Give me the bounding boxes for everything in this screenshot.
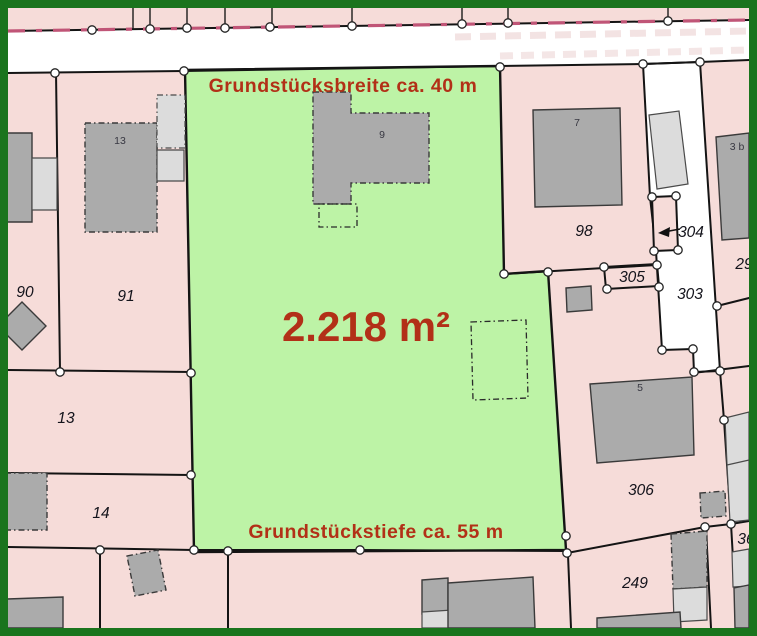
- survey-point: [639, 60, 647, 68]
- parcel-label-303: 303: [677, 286, 703, 303]
- survey-point: [690, 368, 698, 376]
- building-bottom-center-annex: [422, 578, 448, 614]
- survey-point: [720, 416, 728, 424]
- width-annotation: Grundstücksbreite ca. 40 m: [209, 75, 478, 97]
- survey-point: [180, 67, 188, 75]
- building-on-249: [671, 531, 707, 589]
- survey-point: [544, 268, 552, 276]
- building-label-13: 13: [114, 135, 126, 147]
- building-right-edge-2: [727, 460, 749, 522]
- survey-point: [187, 369, 195, 377]
- survey-point: [648, 193, 656, 201]
- survey-point: [221, 24, 229, 32]
- survey-point: [658, 346, 666, 354]
- parcel-label-14: 14: [92, 505, 110, 522]
- survey-point: [496, 63, 504, 71]
- survey-point: [224, 547, 232, 555]
- building-13-annex-upper: [157, 95, 185, 148]
- survey-point: [713, 302, 721, 310]
- survey-point: [701, 523, 709, 531]
- building-on-36-annex: [732, 549, 749, 587]
- building-label-3b: 3 b: [730, 141, 745, 153]
- survey-point: [51, 69, 59, 77]
- survey-point: [504, 19, 512, 27]
- parcel-label-306: 306: [628, 482, 654, 499]
- building-bottom-center: [448, 577, 535, 628]
- building-label-9: 9: [379, 129, 385, 141]
- building-label-5: 5: [637, 382, 643, 394]
- building-label-7: 7: [574, 117, 580, 129]
- survey-point: [650, 247, 658, 255]
- survey-point: [562, 532, 570, 540]
- small-dashed-building-306: [700, 491, 726, 518]
- building-on-36: [734, 585, 749, 628]
- survey-point: [563, 549, 571, 557]
- parcel-label-91: 91: [117, 288, 134, 305]
- survey-point: [56, 368, 64, 376]
- survey-point: [96, 546, 104, 554]
- survey-point: [603, 285, 611, 293]
- survey-point: [266, 23, 274, 31]
- survey-point: [653, 261, 661, 269]
- survey-point: [183, 24, 191, 32]
- parcel-label-305: 305: [619, 269, 645, 286]
- small-building-306: [566, 286, 592, 312]
- survey-point: [727, 520, 735, 528]
- survey-point: [356, 546, 364, 554]
- survey-point: [88, 26, 96, 34]
- building-on-14: [5, 473, 47, 530]
- depth-annotation: Grundstückstiefe ca. 55 m: [248, 521, 503, 543]
- parcel-label-98: 98: [575, 223, 593, 240]
- parcel-304[interactable]: [652, 196, 678, 251]
- survey-point: [674, 246, 682, 254]
- survey-point: [696, 58, 704, 66]
- survey-point: [672, 192, 680, 200]
- parcel-label-304: 304: [678, 224, 704, 241]
- building-annex-on-90: [32, 158, 57, 210]
- survey-point: [348, 22, 356, 30]
- survey-point: [600, 263, 608, 271]
- survey-point: [458, 20, 466, 28]
- map-canvas: Grundstücksbreite ca. 40 m Grundstücksti…: [0, 0, 757, 636]
- parcel-label-249: 249: [621, 575, 648, 592]
- parcel-label-13: 13: [57, 410, 75, 427]
- building-13-annex-lower: [157, 150, 184, 181]
- parcel-label-90: 90: [16, 284, 34, 301]
- area-annotation: 2.218 m²: [282, 303, 450, 350]
- survey-point: [500, 270, 508, 278]
- survey-point: [187, 471, 195, 479]
- survey-point: [655, 283, 663, 291]
- survey-point: [146, 25, 154, 33]
- survey-point: [716, 367, 724, 375]
- survey-point: [664, 17, 672, 25]
- survey-point: [190, 546, 198, 554]
- cadastral-map[interactable]: Grundstücksbreite ca. 40 m Grundstücksti…: [0, 0, 757, 636]
- building-bottom-left: [7, 597, 63, 628]
- survey-point: [689, 345, 697, 353]
